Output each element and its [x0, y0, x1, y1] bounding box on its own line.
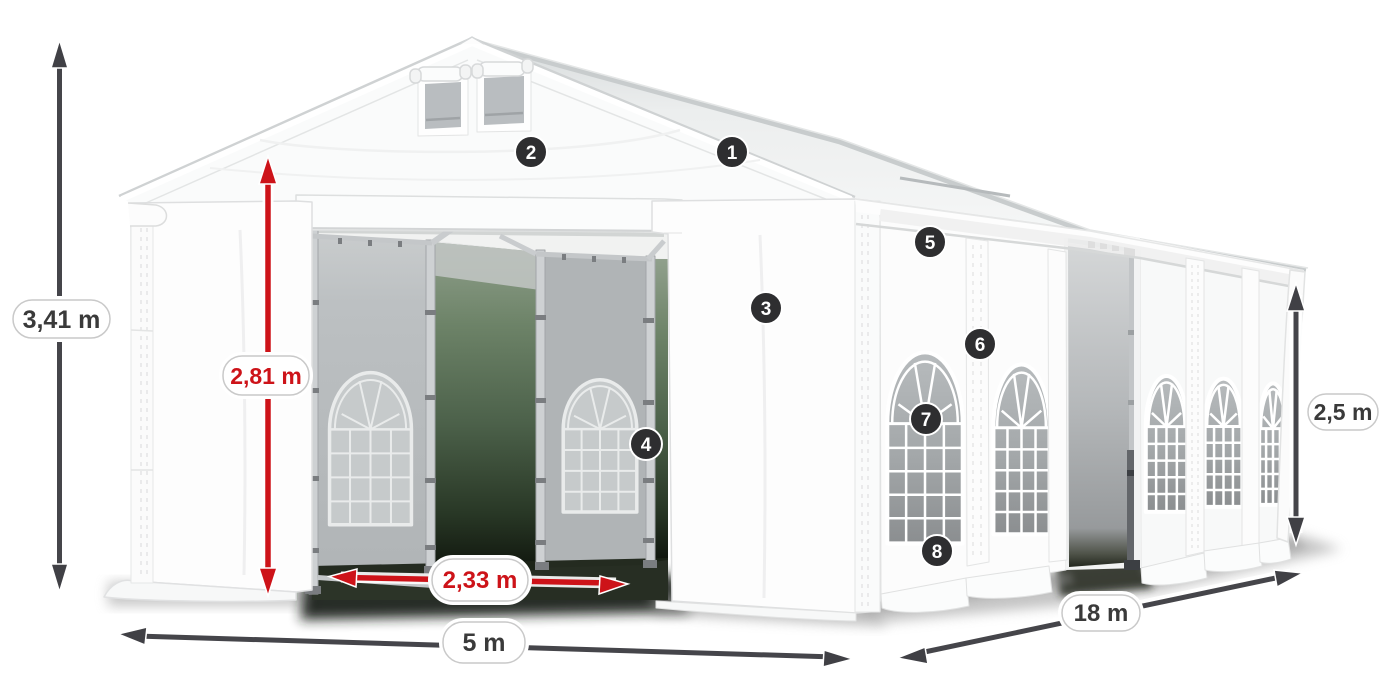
- svg-text:7: 7: [921, 410, 932, 431]
- svg-text:5 m: 5 m: [462, 629, 505, 657]
- svg-text:18 m: 18 m: [1074, 600, 1129, 627]
- svg-text:3: 3: [761, 299, 772, 320]
- svg-text:5: 5: [925, 233, 936, 254]
- svg-text:3,41 m: 3,41 m: [23, 306, 101, 334]
- svg-text:2,33 m: 2,33 m: [443, 567, 518, 594]
- svg-text:1: 1: [727, 143, 738, 164]
- svg-text:6: 6: [975, 335, 986, 356]
- svg-text:2,81 m: 2,81 m: [230, 363, 302, 389]
- svg-text:2,5 m: 2,5 m: [1314, 399, 1373, 425]
- svg-text:4: 4: [641, 435, 652, 456]
- svg-text:8: 8: [932, 542, 943, 563]
- svg-text:2: 2: [526, 143, 537, 164]
